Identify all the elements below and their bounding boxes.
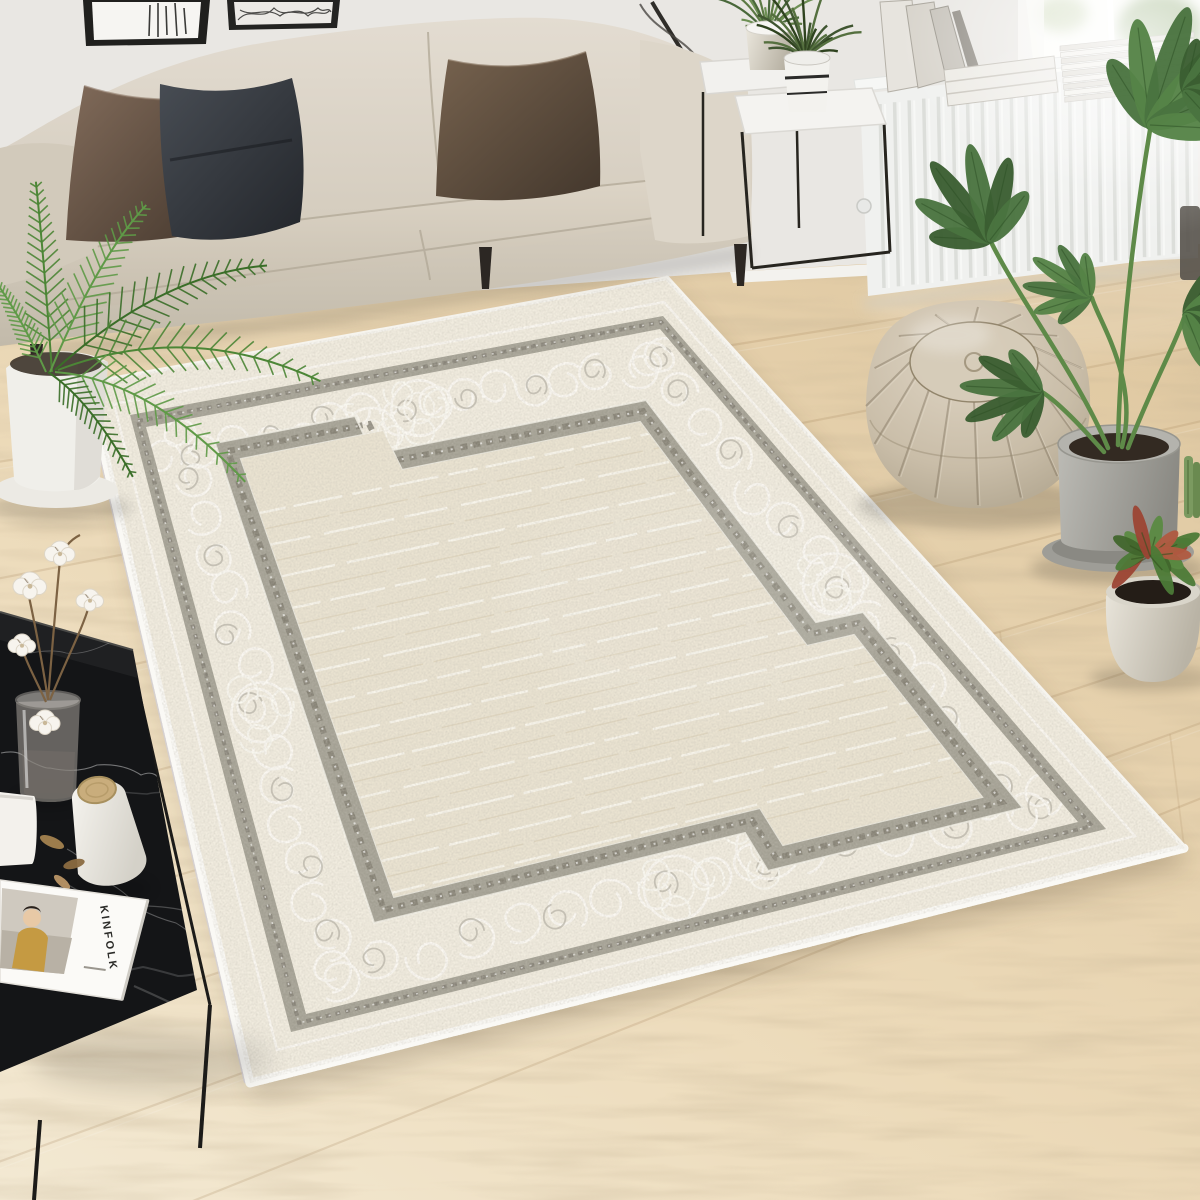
glass-vase xyxy=(14,691,82,810)
picture-frame-1 xyxy=(83,0,210,46)
pillow-brown-right xyxy=(436,52,600,200)
radiator-valve xyxy=(857,199,871,213)
magazine: KINFOLK xyxy=(0,880,148,1000)
photo-stage: KINFOLK xyxy=(0,0,1200,1200)
pillow-charcoal xyxy=(160,78,304,240)
scene-canvas: KINFOLK xyxy=(0,0,1200,1200)
cactus xyxy=(1184,456,1200,518)
picture-frame-2 xyxy=(227,0,340,30)
white-mug xyxy=(0,792,37,866)
